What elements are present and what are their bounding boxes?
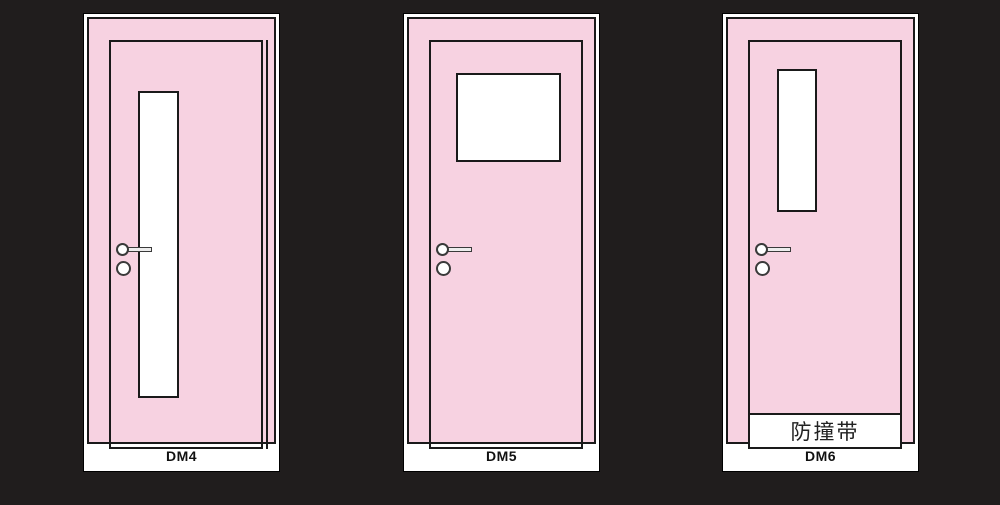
door-card-dm5: DM5 <box>403 13 600 472</box>
door-frame <box>87 17 276 444</box>
door-model-label: DM5 <box>404 448 599 464</box>
door-leaf <box>748 40 902 449</box>
handle-knob-icon <box>116 261 131 276</box>
door-frame <box>407 17 596 444</box>
door-leaf <box>109 40 263 449</box>
handle-knob-icon <box>755 261 770 276</box>
door-frame: 防撞带 <box>726 17 915 444</box>
door-card-dm6: 防撞带 DM6 <box>722 13 919 472</box>
door-glass-panel <box>777 69 817 212</box>
door-diagram: DM4 DM5 防撞带 DM6 <box>0 0 1000 505</box>
handle-rose-icon <box>755 243 768 256</box>
handle-rose-icon <box>436 243 449 256</box>
door-glass-panel <box>138 91 179 398</box>
handle-knob-icon <box>436 261 451 276</box>
door-card-dm4: DM4 <box>83 13 280 472</box>
door-model-label: DM4 <box>84 448 279 464</box>
handle-rose-icon <box>116 243 129 256</box>
door-model-label: DM6 <box>723 448 918 464</box>
door-glass-panel <box>456 73 561 162</box>
anti-collision-strip: 防撞带 <box>748 413 902 449</box>
door-edge-line <box>266 40 268 449</box>
